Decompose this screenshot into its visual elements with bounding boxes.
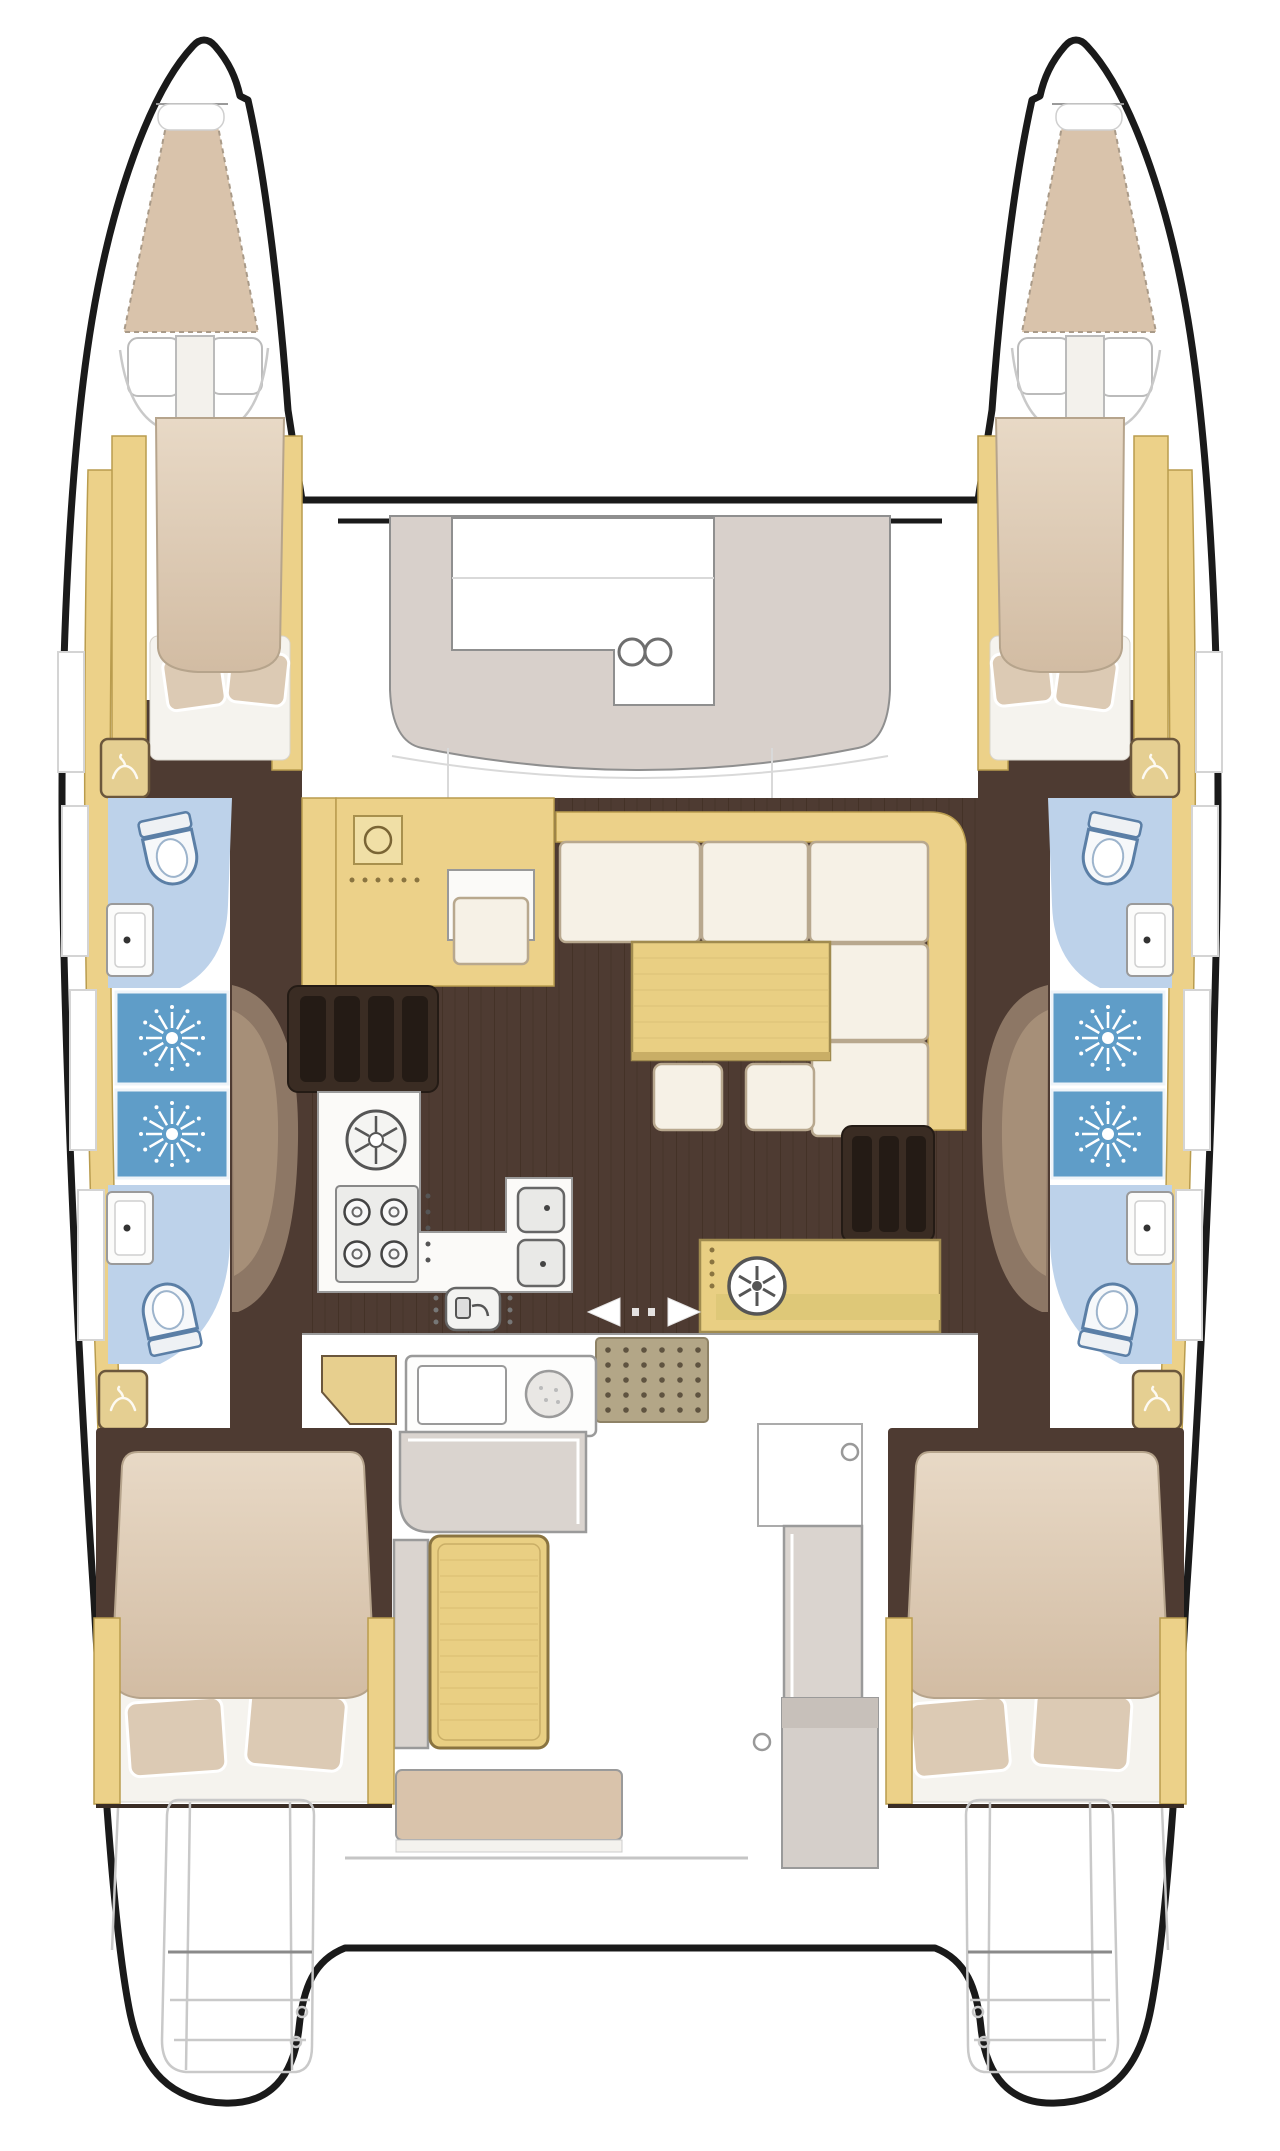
dining-table: [632, 942, 830, 1060]
bed-pillow: [126, 1697, 227, 1778]
washbasin-icon: [107, 1192, 153, 1264]
forepeak-pillow: [158, 104, 224, 130]
nav-station: [700, 1240, 940, 1332]
faucet-icon: [434, 1288, 513, 1330]
round-sink-icon: [347, 1111, 405, 1169]
doormat: [596, 1338, 708, 1422]
wardrobe-icon: [1131, 739, 1179, 797]
nav-instrument-icon: [729, 1258, 785, 1314]
companionway-stairs-starboard: [842, 1126, 934, 1242]
wardrobe-icon: [99, 1371, 147, 1429]
catamaran-floor-plan: [0, 0, 1280, 2151]
starboard-aft-cabin: [886, 1428, 1186, 1806]
double-bed: [112, 1452, 374, 1698]
double-bed: [906, 1452, 1168, 1698]
cockpit-table: [430, 1536, 548, 1748]
double-bed: [156, 418, 284, 672]
bed-pillow: [1032, 1691, 1133, 1772]
deck-fitting-icon: [842, 1444, 858, 1460]
deck-fitting-icon: [754, 1734, 770, 1750]
deck-hatch-icon: [645, 639, 671, 665]
wardrobe-icon: [1133, 1371, 1181, 1429]
cockpit-wet-bar: [406, 1356, 596, 1436]
double-bed: [996, 418, 1124, 672]
wardrobe-icon: [101, 739, 149, 797]
washbasin-icon: [107, 904, 153, 976]
washbasin-icon: [1127, 1192, 1173, 1264]
deck-hatch-icon: [619, 639, 645, 665]
bed-pillow: [245, 1690, 347, 1772]
floor-plan-canvas: [0, 0, 1280, 2151]
bed-pillow: [909, 1696, 1011, 1778]
forepeak-pillow: [1056, 104, 1122, 130]
side-seat: [454, 898, 528, 964]
stool: [654, 1064, 722, 1130]
grill-icon: [526, 1371, 572, 1417]
starboard-showers: [1052, 992, 1164, 1178]
stove-icon: [336, 1186, 418, 1282]
davit-pillar: [782, 1698, 878, 1868]
forward-cockpit-sunpad: [390, 516, 890, 778]
washbasin-icon: [1127, 904, 1173, 976]
cockpit-locker: [758, 1424, 862, 1526]
port-aft-cabin: [94, 1428, 394, 1806]
port-showers: [116, 992, 228, 1178]
salon: [288, 798, 978, 1334]
stool: [746, 1064, 814, 1130]
companionway-stairs-port: [288, 986, 438, 1092]
